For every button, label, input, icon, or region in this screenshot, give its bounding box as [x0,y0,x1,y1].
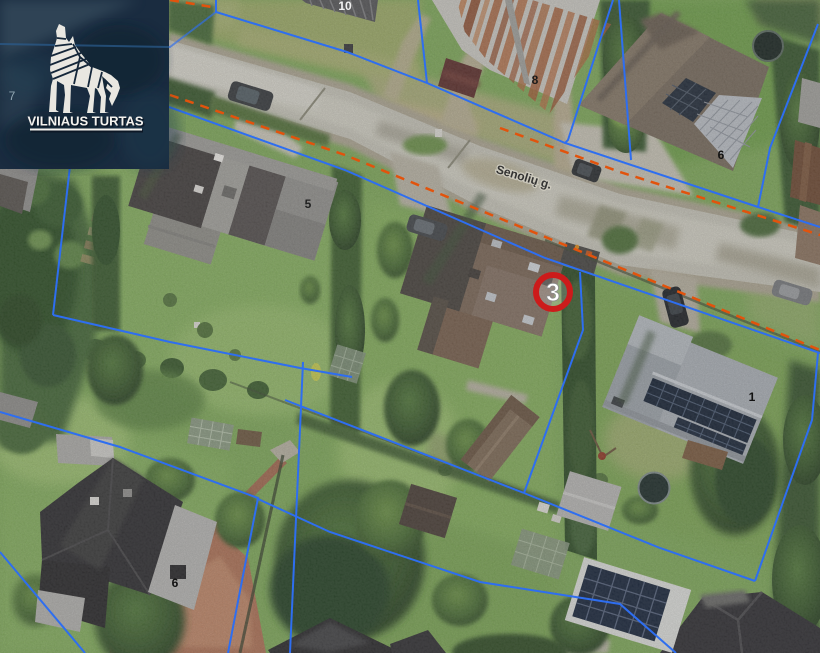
svg-text:VILNIAUS TURTAS: VILNIAUS TURTAS [27,114,143,129]
svg-text:3: 3 [546,279,560,307]
svg-text:6: 6 [718,148,725,162]
svg-text:7: 7 [9,89,16,103]
svg-text:6: 6 [172,576,179,590]
svg-text:10: 10 [338,0,352,13]
svg-text:5: 5 [305,197,312,211]
svg-text:8: 8 [532,73,539,87]
svg-text:1: 1 [749,390,756,404]
